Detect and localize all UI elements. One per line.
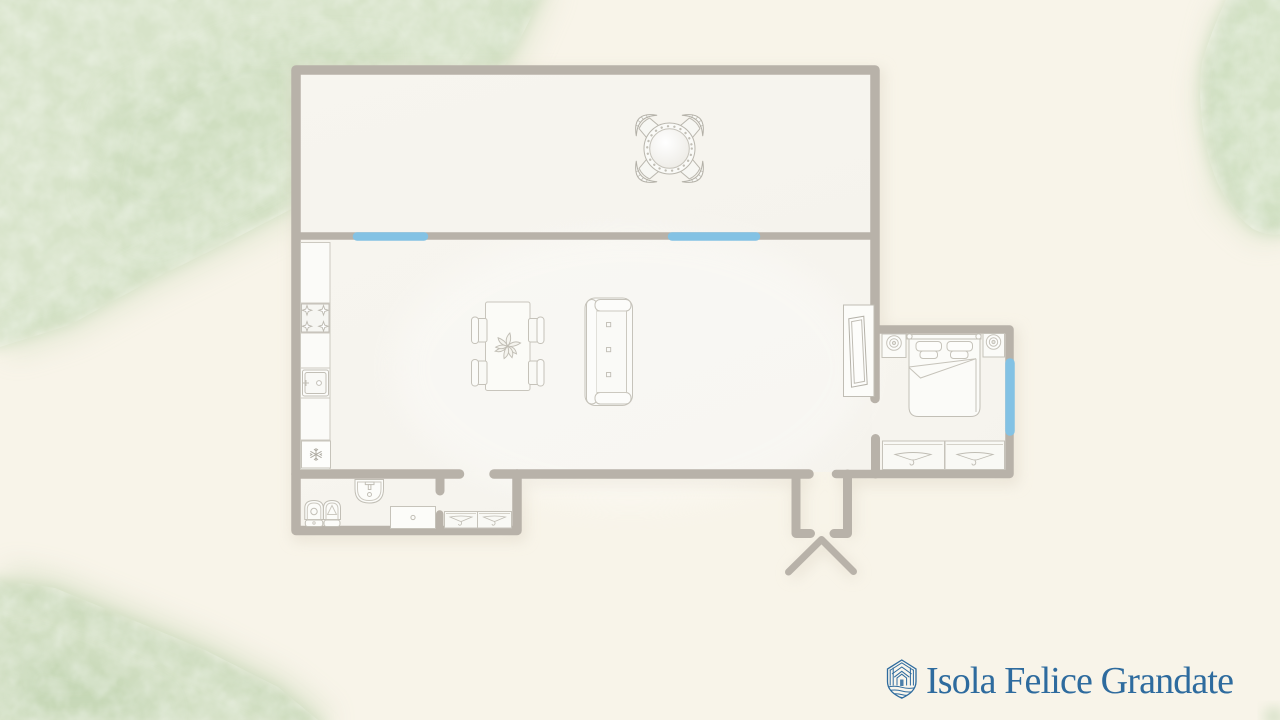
svg-text:Isola Felice Grandate: Isola Felice Grandate — [926, 660, 1234, 702]
